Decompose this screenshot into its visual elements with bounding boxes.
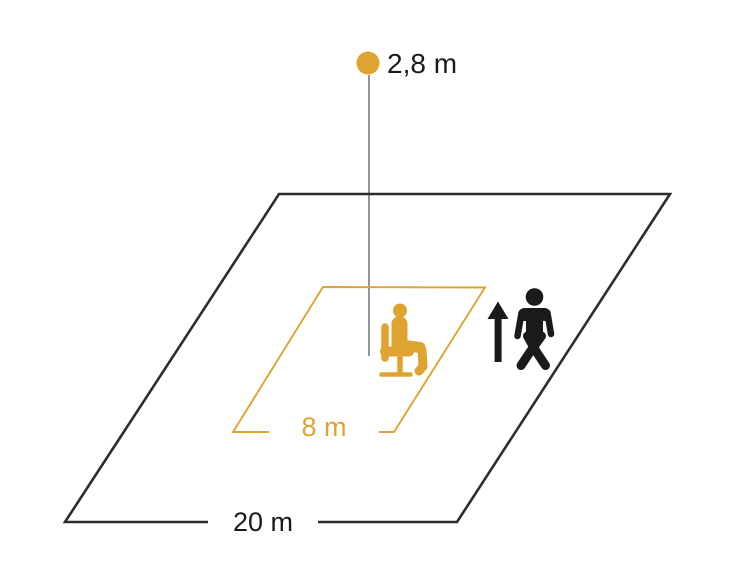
walking-detection-area: [65, 194, 670, 522]
walking-person-icon: [518, 288, 552, 365]
seated-presence-area: [233, 287, 485, 432]
sensor-range-diagram: 20 m 8 m 2,8 m: [0, 0, 740, 587]
diagram-canvas: 20 m 8 m 2,8 m: [0, 0, 740, 587]
up-arrow-icon: [488, 302, 509, 363]
seated-person-icon: [382, 304, 424, 375]
mounting-height-label: 2,8 m: [387, 48, 457, 79]
walking-range-label: 20 m: [233, 507, 293, 537]
sensor-dot: [357, 52, 380, 75]
presence-range-label: 8 m: [301, 412, 346, 442]
